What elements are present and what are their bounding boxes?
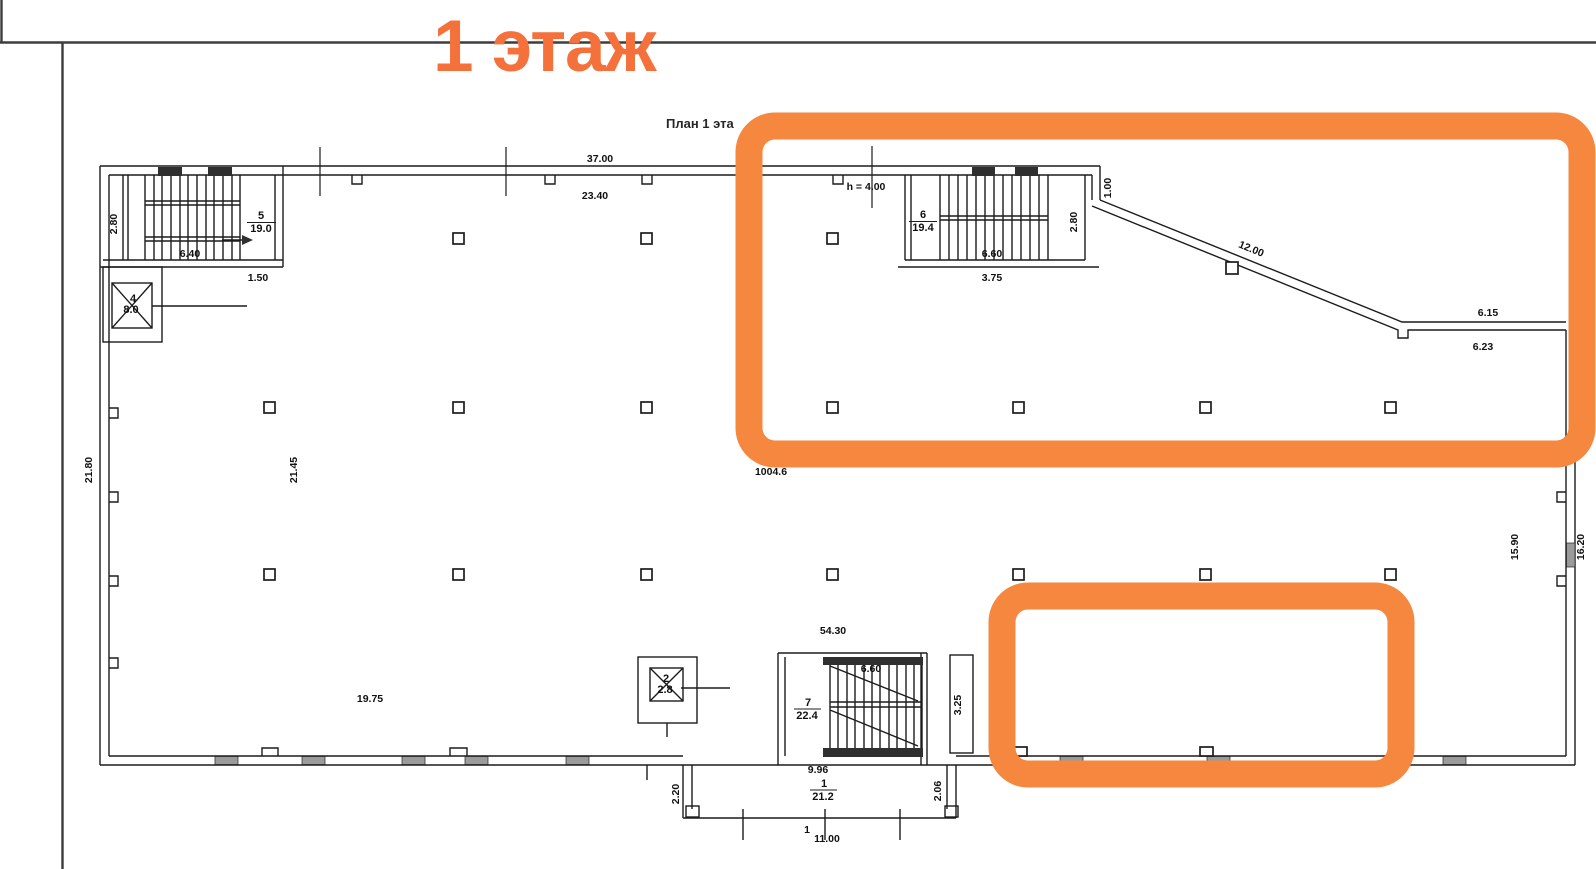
room2-area: 2.8 <box>657 684 672 696</box>
dim-stair6-depth: 2.80 <box>1068 212 1080 233</box>
dim-left-inner: 21.45 <box>288 457 300 483</box>
dim-right-inner: 15.90 <box>1509 534 1521 560</box>
dim-vestibule-left: 2.20 <box>670 784 682 805</box>
dim-mid-width: 54.30 <box>820 625 846 637</box>
dim-vestibule-right: 2.06 <box>932 781 944 802</box>
dim-stair5-width: 6.40 <box>180 248 201 260</box>
dim-stair7-width: 6.60 <box>861 663 882 675</box>
room6-area: 19.4 <box>912 222 934 234</box>
dim-stair5-depth: 2.80 <box>108 214 120 235</box>
hall-area: 1004.6 <box>755 466 787 478</box>
dim-porch-width: 11.00 <box>814 833 840 845</box>
wall-hatches <box>215 543 1575 765</box>
room5-number: 5 <box>258 210 264 222</box>
room1-number: 1 <box>821 778 827 790</box>
dim-stair6-below: 3.75 <box>982 272 1003 284</box>
dim-ramp-bottom: 6.23 <box>1473 341 1494 353</box>
axis-label: 1 <box>804 824 810 836</box>
dim-stair7-depth: 3.25 <box>952 695 964 716</box>
dim-top-outer: 37.00 <box>587 153 613 165</box>
dim-step: 1.00 <box>1102 178 1114 199</box>
stair-arrow-head <box>242 235 253 245</box>
dim-stair6-width: 6.60 <box>982 248 1003 260</box>
room5-area: 19.0 <box>250 223 271 235</box>
room7-number: 7 <box>805 697 811 709</box>
floor-plan-svg: 37.00 23.40 h = 4.00 5 19.0 6.40 2.80 1.… <box>0 0 1596 869</box>
plan-walls <box>100 146 1575 840</box>
dim-top-inner: 23.40 <box>582 190 608 202</box>
columns <box>264 233 1405 756</box>
plan-caption: План 1 эта <box>666 117 734 130</box>
dim-stair5-offset: 1.50 <box>248 272 269 284</box>
dim-hall-width: 19.75 <box>357 693 383 705</box>
room7-area: 22.4 <box>796 710 818 722</box>
page-title: 1 этаж <box>433 10 655 83</box>
room6-number: 6 <box>920 209 926 221</box>
note-ceiling-height: h = 4.00 <box>847 181 886 193</box>
floor-plan-page: 37.00 23.40 h = 4.00 5 19.0 6.40 2.80 1.… <box>0 0 1596 869</box>
room4-area: 8.0 <box>123 304 138 316</box>
plan-labels: 37.00 23.40 h = 4.00 5 19.0 6.40 2.80 1.… <box>83 153 1587 845</box>
dim-stair7-below: 9.96 <box>808 764 829 776</box>
room1-area: 21.2 <box>812 791 833 803</box>
dim-left-outer: 21.80 <box>83 457 95 483</box>
dim-ramp-top: 6.15 <box>1478 307 1499 319</box>
highlight-annotations <box>749 126 1582 774</box>
dim-right-outer: 16.20 <box>1575 534 1587 560</box>
